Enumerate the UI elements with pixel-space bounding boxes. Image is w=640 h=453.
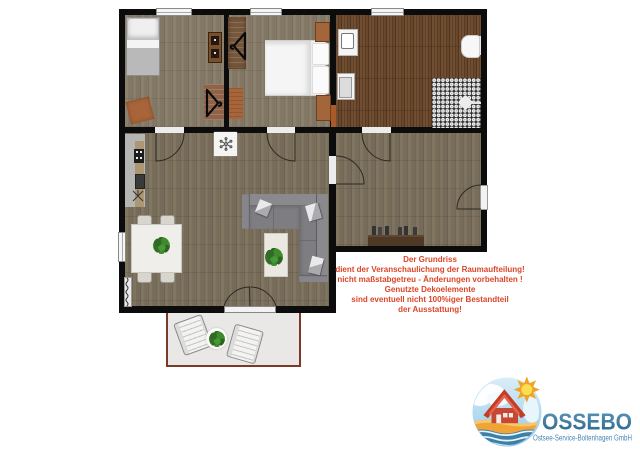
svg-text:Ostsee-Service-Boltenhagen Gmb: Ostsee-Service-Boltenhagen GmbH [533, 434, 632, 443]
svg-text:OSSEBO: OSSEBO [542, 409, 632, 435]
